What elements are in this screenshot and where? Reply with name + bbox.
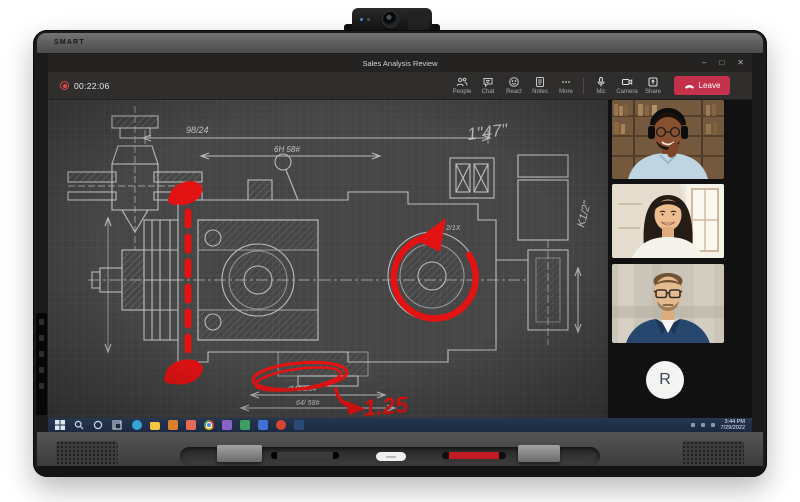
react-icon <box>508 76 520 88</box>
task-view-icon[interactable] <box>112 420 122 430</box>
bezel-top: SMART <box>37 33 763 53</box>
eraser-right <box>518 445 560 462</box>
meeting-title: Sales Analysis Review <box>48 59 752 68</box>
mic-icon <box>595 76 607 88</box>
recording-timer: 00:22:06 <box>74 81 110 91</box>
camera-button[interactable]: Camera <box>614 76 640 95</box>
system-tray: 3:44 PM 7/29/2022 <box>691 419 745 431</box>
hang-up-icon <box>684 77 695 95</box>
side-button <box>39 383 44 389</box>
meeting-toolbar: 00:22:06 People Chat <box>48 72 752 100</box>
notes-button[interactable]: Notes <box>527 76 553 95</box>
more-icon <box>560 76 572 88</box>
edge-icon[interactable] <box>132 420 142 430</box>
app-orange-icon[interactable] <box>168 420 178 430</box>
windows-taskbar: 3:44 PM 7/29/2022 <box>48 418 752 432</box>
screenshot-stage: SMART Sales Analysis Review – □ ✕ 00:22:… <box>0 0 800 502</box>
tray-icon[interactable] <box>691 423 695 427</box>
chrome-icon[interactable] <box>204 420 214 430</box>
pen-tray <box>180 447 600 466</box>
dim-label: 2/1X <box>445 225 461 232</box>
black-pen <box>271 452 339 459</box>
tray-icon[interactable] <box>701 423 705 427</box>
dim-label: 6H 58# <box>274 145 300 154</box>
red-pen <box>442 452 506 459</box>
more-button[interactable]: More <box>553 76 579 95</box>
participants-sidebar: R <box>608 100 752 418</box>
video-tile-participant-2[interactable] <box>612 184 724 258</box>
webcam-mount <box>408 10 429 31</box>
participant-3-video <box>612 264 724 343</box>
webcam-lens <box>382 11 399 28</box>
device-bottom-edge <box>37 466 763 477</box>
video-tile-participant-1[interactable] <box>612 100 724 179</box>
search-icon[interactable] <box>74 420 84 430</box>
people-icon <box>456 76 468 88</box>
minimize-button[interactable]: – <box>702 59 706 67</box>
taskbar-clock[interactable]: 3:44 PM 7/29/2022 <box>721 419 745 431</box>
record-icon <box>60 81 69 90</box>
react-button[interactable]: React <box>501 76 527 95</box>
side-button <box>39 367 44 373</box>
file-explorer-icon[interactable] <box>150 422 160 430</box>
side-button <box>39 319 44 325</box>
maximize-button[interactable]: □ <box>719 59 724 67</box>
dim-label: 98/24 <box>186 125 209 135</box>
home-button <box>376 452 406 461</box>
clock-date: 7/29/2022 <box>721 425 745 431</box>
recording-indicator: 00:22:06 <box>60 81 110 91</box>
participant-2-video <box>612 184 724 258</box>
app-green-icon[interactable] <box>240 420 250 430</box>
brand-logo: SMART <box>54 39 85 46</box>
dim-label: 64/ 58# <box>296 400 319 407</box>
eraser-left <box>217 445 262 462</box>
avatar-initial: R <box>659 371 671 389</box>
webcam-status-led <box>360 18 363 21</box>
app-purple-icon[interactable] <box>222 420 232 430</box>
video-tile-participant-3[interactable] <box>612 264 724 343</box>
chat-button[interactable]: Chat <box>475 76 501 95</box>
share-button[interactable]: Share <box>640 76 666 95</box>
participant-avatar[interactable]: R <box>646 361 684 399</box>
start-icon[interactable] <box>55 420 65 430</box>
close-button[interactable]: ✕ <box>737 59 744 67</box>
display-screen: Sales Analysis Review – □ ✕ 00:22:06 <box>48 54 752 432</box>
chat-icon <box>482 76 494 88</box>
cortana-icon[interactable] <box>93 420 103 430</box>
speaker-grille-left <box>56 441 118 468</box>
webcam-led <box>367 18 370 21</box>
toolbar-divider <box>583 78 584 94</box>
teams-titlebar: Sales Analysis Review – □ ✕ <box>48 54 752 72</box>
meeting-stage: 98/24 6H 58# 1"47" K1/2" Ø41 Ø94 64/ 58#… <box>48 100 752 418</box>
tray-icon[interactable] <box>711 423 715 427</box>
mic-button[interactable]: Mic <box>588 76 614 95</box>
camera-icon <box>621 76 633 88</box>
speaker-grille-right <box>682 441 744 468</box>
side-control-panel <box>36 313 47 415</box>
taskbar-apps <box>132 420 304 430</box>
participant-1-video <box>612 100 724 179</box>
side-button <box>39 335 44 341</box>
ink-handwritten-value: 1.25 <box>362 391 410 418</box>
people-button[interactable]: People <box>449 76 475 95</box>
app-blue-icon[interactable] <box>258 420 268 430</box>
app-red-icon[interactable] <box>276 420 286 430</box>
leave-button[interactable]: Leave <box>674 76 730 95</box>
app-navy-icon[interactable] <box>294 420 304 430</box>
side-button <box>39 351 44 357</box>
share-icon <box>647 76 659 88</box>
app-coral-icon[interactable] <box>186 420 196 430</box>
blueprint-canvas[interactable]: 98/24 6H 58# 1"47" K1/2" Ø41 Ø94 64/ 58#… <box>48 100 608 418</box>
notes-icon <box>534 76 546 88</box>
